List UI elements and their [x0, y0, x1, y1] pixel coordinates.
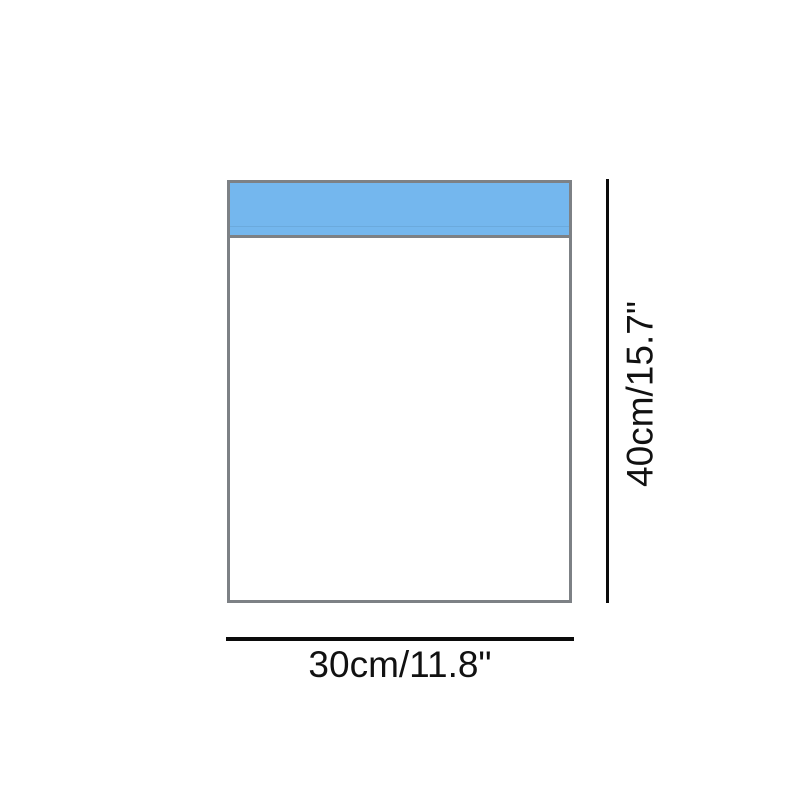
height-dimension-line — [606, 179, 609, 603]
bag-flap-strip — [230, 183, 569, 238]
product-dimension-diagram: 40cm/15.7" 30cm/11.8" — [0, 0, 800, 800]
width-dimension-line — [226, 637, 574, 641]
width-dimension-label: 30cm/11.8" — [308, 643, 491, 687]
bag-outline — [227, 180, 572, 603]
height-dimension-label: 40cm/15.7" — [622, 301, 659, 487]
flap-seam-line — [230, 226, 569, 227]
